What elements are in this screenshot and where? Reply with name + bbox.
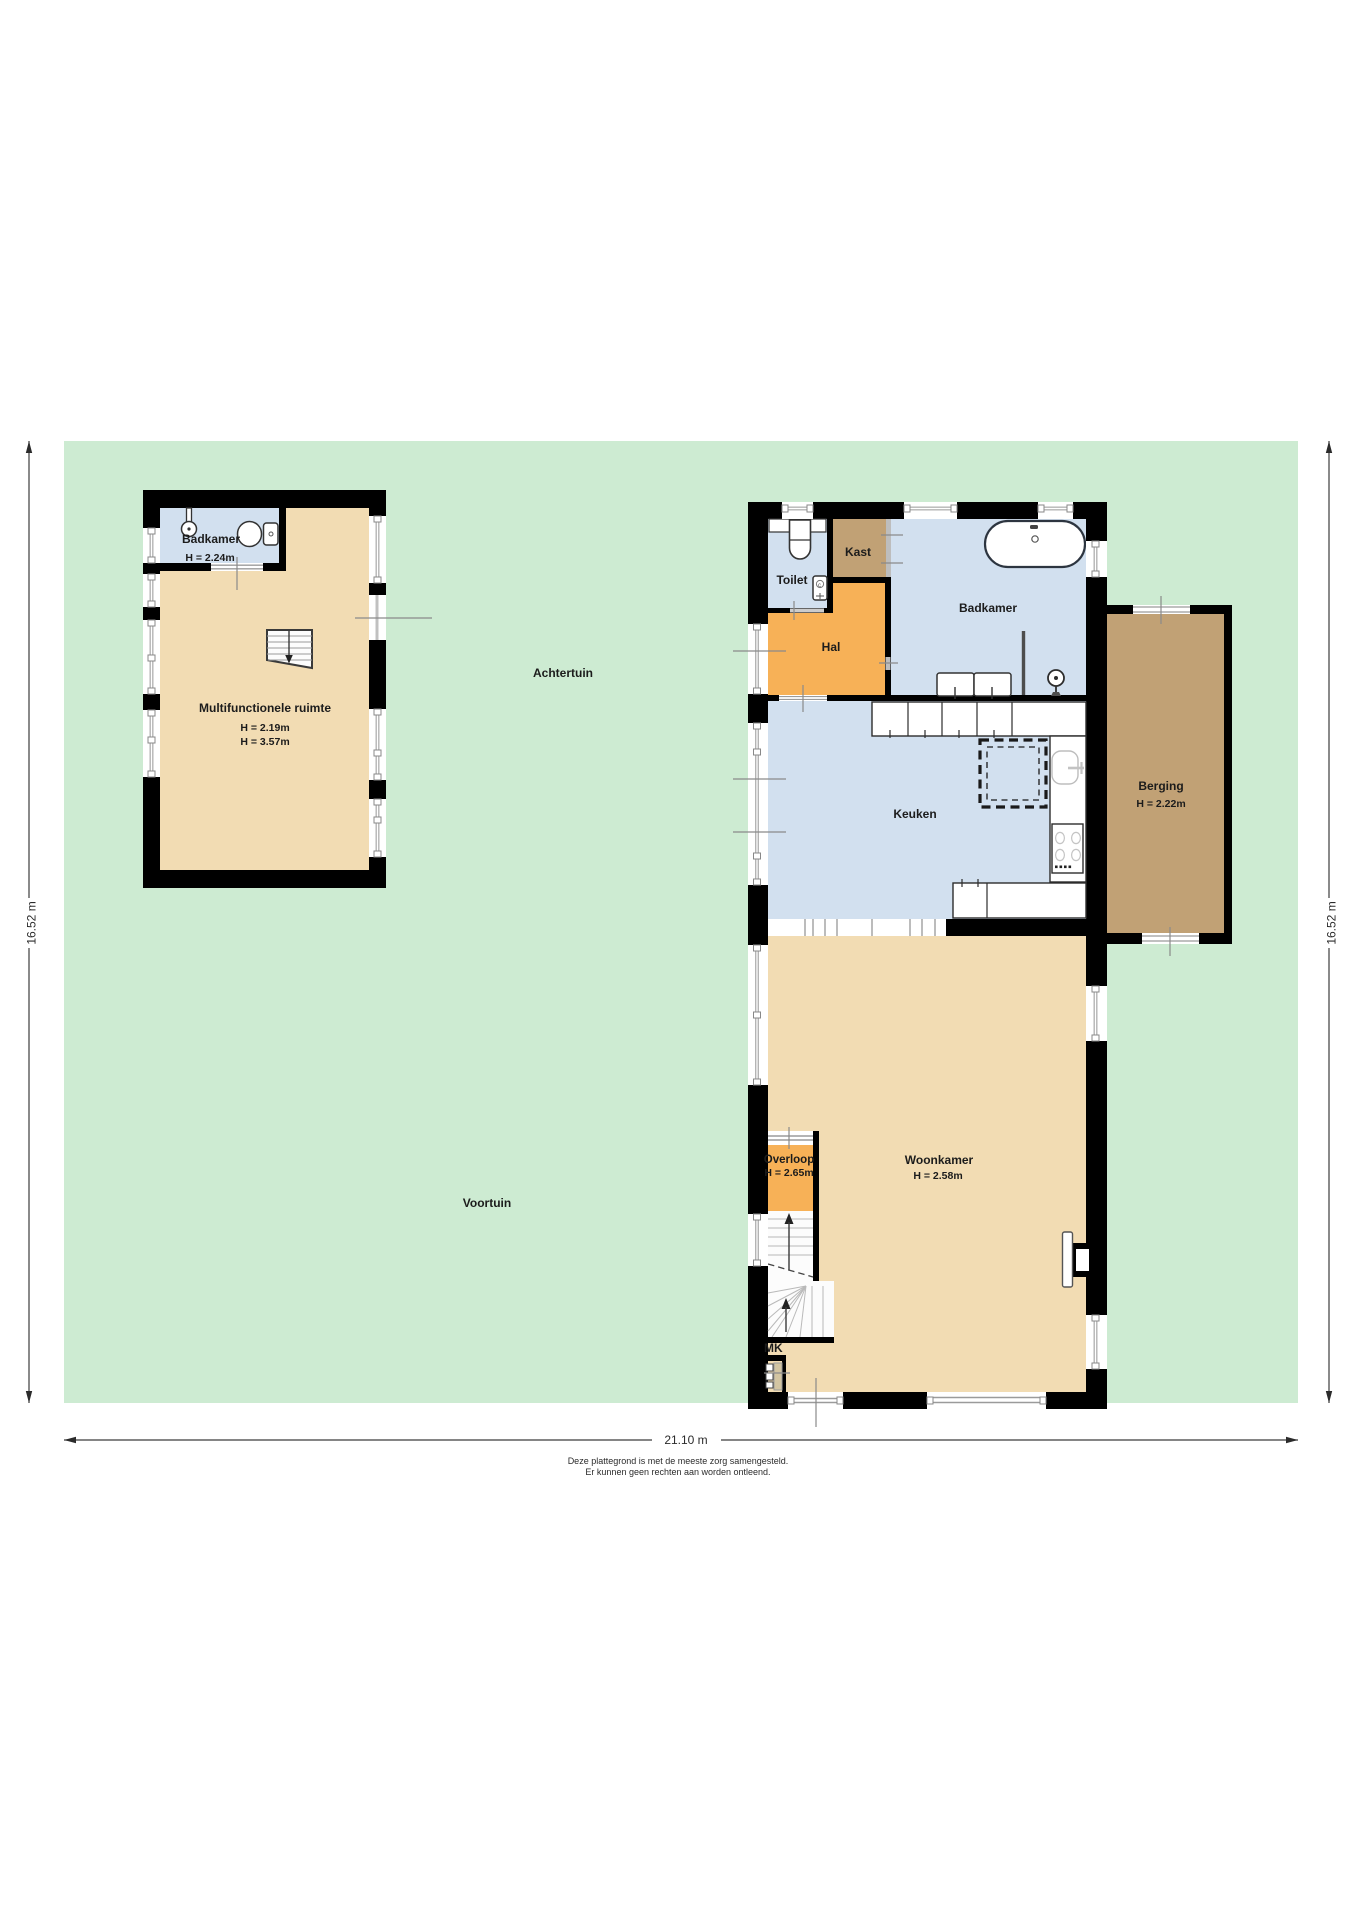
svg-text:Kast: Kast	[845, 545, 871, 559]
svg-text:H = 2.24m: H = 2.24m	[185, 552, 234, 564]
svg-text:16.52 m: 16.52 m	[1325, 901, 1339, 944]
svg-text:Er kunnen geen rechten aan wor: Er kunnen geen rechten aan worden ontlee…	[585, 1467, 770, 1477]
svg-text:H = 3.57m: H = 3.57m	[240, 736, 289, 748]
svg-text:c: c	[818, 583, 821, 589]
svg-text:Voortuin: Voortuin	[463, 1196, 511, 1210]
svg-text:H = 2.19m: H = 2.19m	[240, 722, 289, 734]
svg-text:Achtertuin: Achtertuin	[533, 666, 593, 680]
svg-text:Deze plattegrond is met de mee: Deze plattegrond is met de meeste zorg s…	[568, 1456, 789, 1466]
svg-text:Woonkamer: Woonkamer	[905, 1153, 974, 1167]
svg-text:Keuken: Keuken	[893, 807, 936, 821]
svg-text:21.10 m: 21.10 m	[664, 1433, 707, 1447]
svg-text:Badkamer: Badkamer	[959, 601, 1017, 615]
svg-text:MK: MK	[764, 1341, 783, 1355]
svg-text:Toilet: Toilet	[776, 573, 807, 587]
svg-text:H = 2.58m: H = 2.58m	[913, 1170, 962, 1182]
svg-text:Badkamer: Badkamer	[182, 532, 240, 546]
svg-text:Multifunctionele ruimte: Multifunctionele ruimte	[199, 701, 331, 715]
svg-text:H = 2.65m: H = 2.65m	[764, 1167, 813, 1179]
svg-text:16.52 m: 16.52 m	[25, 901, 39, 944]
svg-text:Berging: Berging	[1138, 779, 1183, 793]
svg-text:H = 2.22m: H = 2.22m	[1136, 798, 1185, 810]
svg-text:Overloop: Overloop	[764, 1154, 814, 1166]
svg-text:Hal: Hal	[822, 640, 841, 654]
